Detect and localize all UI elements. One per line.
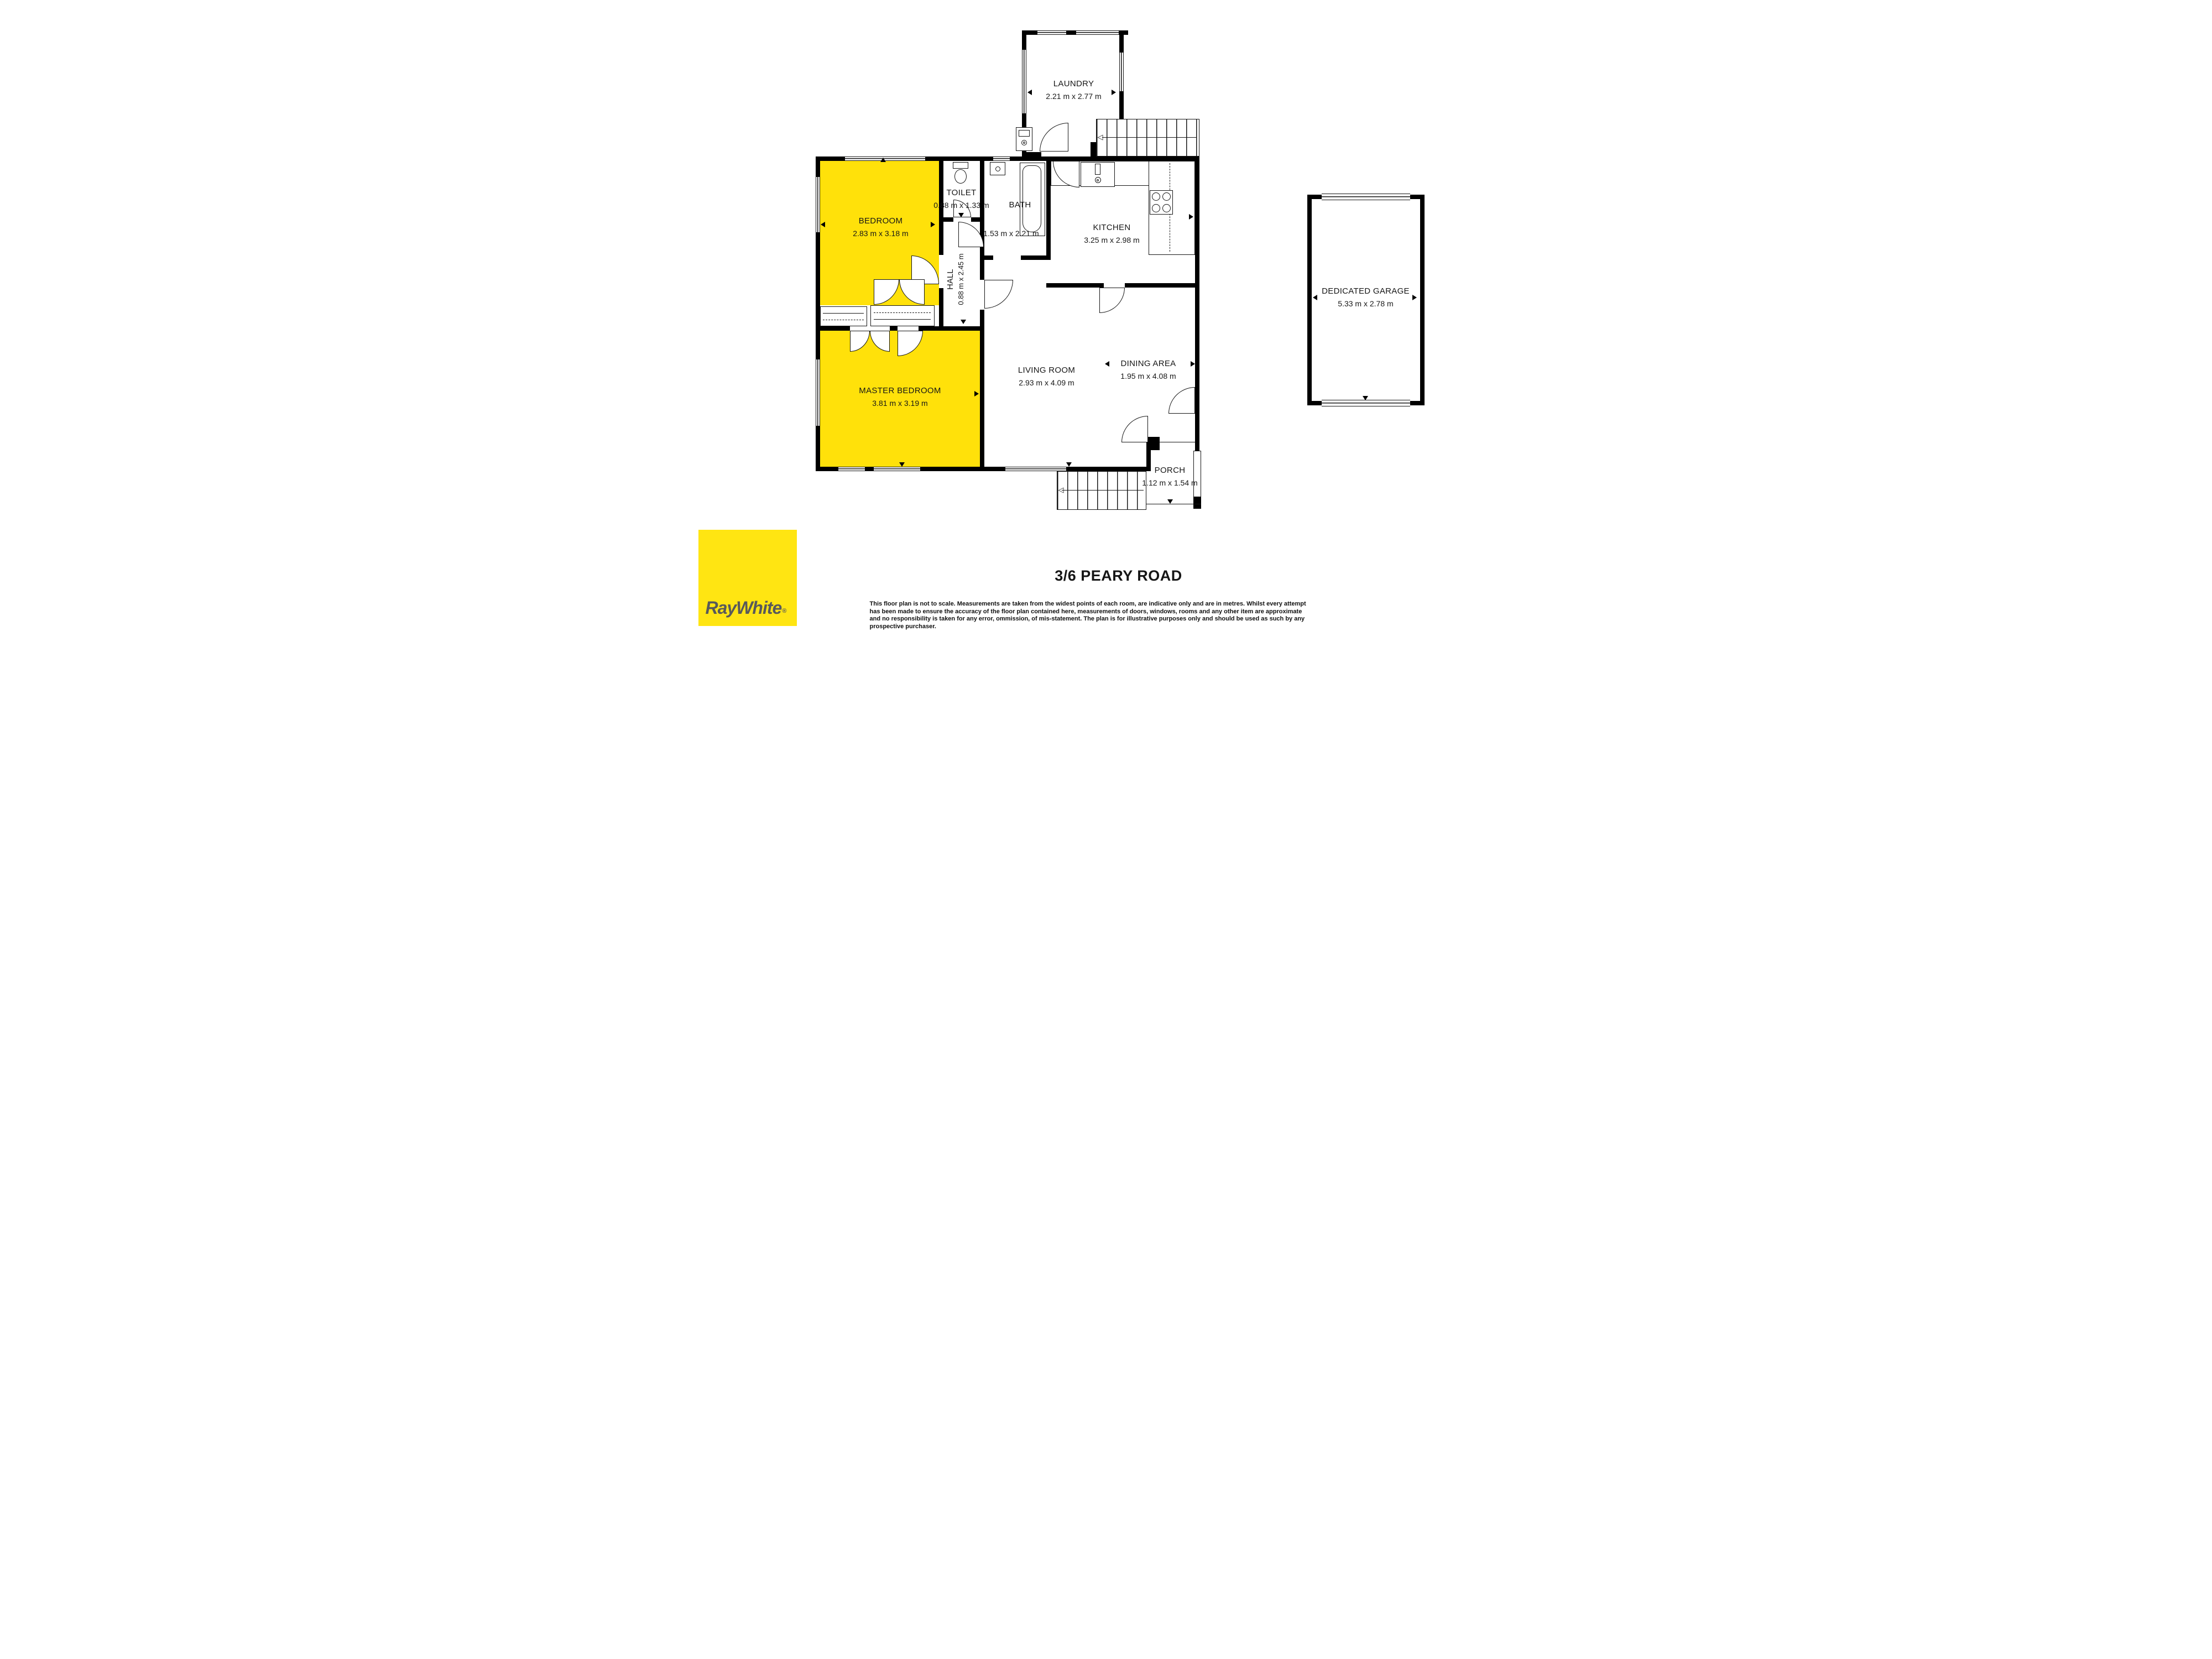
wall (939, 217, 953, 222)
room-name: BATH (1009, 200, 1031, 210)
measure-arrow (1027, 90, 1032, 95)
toilet-bowl (954, 169, 967, 184)
measure-arrow (1112, 90, 1116, 95)
closet (820, 306, 867, 326)
measure-arrow (1189, 214, 1193, 220)
room-dims: 2.83 m x 3.18 m (853, 229, 908, 238)
kitchen-sink (1081, 162, 1115, 187)
registered-mark-icon: ® (782, 608, 786, 614)
room-dims: 3.25 m x 2.98 m (1084, 236, 1139, 244)
room-dims: 5.33 m x 2.78 m (1322, 299, 1410, 308)
wall (1307, 195, 1322, 199)
room-dims: 2.93 m x 4.09 m (1018, 378, 1075, 387)
room-label-master-bedroom: MASTER BEDROOM 3.81 m x 3.19 m (859, 386, 941, 408)
wall (816, 326, 850, 331)
measure-arrow (1363, 396, 1368, 400)
wall (1410, 401, 1425, 405)
disclaimer-text: This floor plan is not to scale. Measure… (870, 601, 1306, 630)
room-label-laundry: LAUNDRY 2.21 m x 2.77 m (1046, 79, 1101, 101)
wall (980, 331, 984, 467)
room-dims: 0.88 m x 2.45 m (957, 241, 965, 318)
window (838, 467, 865, 471)
wall (1193, 497, 1201, 509)
door-arc (1099, 288, 1125, 313)
closet-shelf-line (823, 313, 864, 314)
burner (1152, 192, 1160, 201)
room-name: TOILET (933, 188, 989, 197)
door-arc (1040, 123, 1068, 152)
measure-arrow (1105, 361, 1109, 367)
measure-arrow (931, 222, 935, 227)
measure-arrow (1412, 295, 1417, 300)
wall (890, 326, 898, 331)
room-name: DEDICATED GARAGE (1322, 286, 1410, 296)
brand-name: RayWhite (706, 598, 782, 618)
bath-sink (990, 162, 1005, 175)
window (816, 359, 820, 426)
room-label-porch: PORCH 1.12 m x 1.54 m (1142, 466, 1197, 487)
door-arc (1121, 416, 1148, 442)
window (874, 467, 920, 471)
disclaimer-line: and no responsibility is taken for any e… (870, 615, 1306, 623)
window (1005, 467, 1066, 471)
laundry-tap (1019, 130, 1030, 137)
measure-arrow (1167, 499, 1173, 504)
burner (1162, 192, 1171, 201)
wall (1125, 283, 1199, 288)
closet (870, 305, 935, 326)
measure-arrow (974, 391, 979, 397)
wall (919, 326, 984, 331)
burner (1152, 204, 1160, 212)
room-label-kitchen: KITCHEN 3.25 m x 2.98 m (1084, 223, 1139, 244)
window (1076, 30, 1119, 35)
room-name: MASTER BEDROOM (859, 386, 941, 395)
room-name: BEDROOM (853, 216, 908, 226)
steps-arrow-icon: ◁ (1058, 486, 1064, 493)
room-dims-bath: 1.53 m x 2.21 m (983, 229, 1039, 238)
wall (1066, 30, 1076, 35)
window (1119, 53, 1124, 91)
window (993, 156, 1010, 161)
bathtub (1020, 163, 1045, 236)
measure-arrow (1066, 462, 1072, 467)
wall (1022, 30, 1026, 50)
kitchen-drain-dot (1097, 179, 1099, 181)
ray-white-logo-text: RayWhite® (706, 598, 786, 618)
wall (1021, 255, 1051, 260)
wall (816, 467, 1151, 471)
entry-steps (1057, 471, 1146, 510)
room-label-living-room: LIVING ROOM 2.93 m x 4.09 m (1018, 366, 1075, 387)
room-label-bath: BATH (1009, 200, 1031, 210)
toilet-cistern (953, 162, 968, 169)
room-dims: 1.53 m x 2.21 m (983, 229, 1039, 238)
measure-arrow (821, 222, 825, 227)
room-dims: 2.21 m x 2.77 m (1046, 92, 1101, 101)
room-name: HALL (946, 241, 955, 318)
room-name: DINING AREA (1120, 359, 1176, 368)
bathtub-inner (1022, 165, 1041, 232)
closet-rail-dashed (823, 320, 864, 320)
wall (1119, 30, 1124, 53)
disclaimer-line: has been made to ensure the accuracy of … (870, 608, 1306, 616)
window (816, 177, 820, 232)
disclaimer-line: This floor plan is not to scale. Measure… (870, 601, 1306, 608)
wall (980, 260, 984, 280)
wall (939, 288, 943, 331)
room-name: LAUNDRY (1046, 79, 1101, 88)
burner (1162, 204, 1171, 212)
stairs-arrow-icon: ◁ (1098, 133, 1103, 140)
window (1022, 50, 1026, 113)
wall (1195, 156, 1199, 451)
porch-top-line (1159, 442, 1195, 442)
room-label-garage: DEDICATED GARAGE 5.33 m x 2.78 m (1322, 286, 1410, 308)
property-address-title: 3/6 PEARY ROAD (1055, 567, 1182, 585)
door-arc (984, 280, 1013, 309)
wall (1146, 437, 1160, 450)
door-arc (1168, 387, 1195, 414)
room-name: PORCH (1142, 466, 1197, 475)
room-label-dining-area: DINING AREA 1.95 m x 4.08 m (1120, 359, 1176, 380)
wall (1022, 152, 1041, 156)
laundry-drain-dot (1023, 142, 1025, 144)
bath-sink-bowl (995, 166, 1000, 171)
measure-arrow (1313, 295, 1317, 300)
stove (1150, 190, 1173, 215)
room-label-toilet: TOILET 0.88 m x 1.33 m (933, 188, 989, 210)
measure-arrow (961, 320, 966, 324)
stairs-direction-line (1102, 137, 1196, 138)
garage-door-band (1322, 194, 1410, 200)
room-dims: 1.12 m x 1.54 m (1142, 478, 1197, 487)
room-dims: 3.81 m x 3.19 m (859, 399, 941, 408)
closet-rail-dashed (874, 312, 931, 313)
room-name: LIVING ROOM (1018, 366, 1075, 375)
garage-door-band (1322, 400, 1410, 406)
laundry-tub (1016, 127, 1032, 151)
room-name: KITCHEN (1084, 223, 1139, 232)
disclaimer-line: prospective purchaser. (870, 623, 1306, 631)
wall (1420, 195, 1425, 405)
measure-arrow (958, 213, 964, 217)
wall (1307, 401, 1322, 405)
measure-arrow (880, 158, 886, 162)
wall (1307, 195, 1312, 405)
wall (971, 217, 984, 222)
room-dims: 0.88 m x 1.33 m (933, 201, 989, 210)
porch-bottom-line (1146, 504, 1201, 504)
stairs (1096, 119, 1199, 156)
wall (980, 255, 993, 260)
room-label-bedroom: BEDROOM 2.83 m x 3.18 m (853, 216, 908, 238)
ray-white-logo: RayWhite® (698, 530, 797, 626)
room-label-hall: HALL 0.88 m x 2.45 m (946, 241, 972, 318)
wall (1410, 195, 1425, 199)
measure-arrow (899, 462, 905, 467)
room-dims: 1.95 m x 4.08 m (1120, 372, 1176, 380)
steps-direction-line (1062, 490, 1144, 491)
closet-shelf-line (874, 319, 931, 320)
wall (1046, 161, 1051, 260)
kitchen-faucet (1095, 164, 1100, 175)
wall (1046, 283, 1104, 288)
window (1037, 30, 1066, 35)
measure-arrow (1191, 361, 1195, 367)
floorplan-page: ◁ ◁ (679, 0, 1533, 641)
